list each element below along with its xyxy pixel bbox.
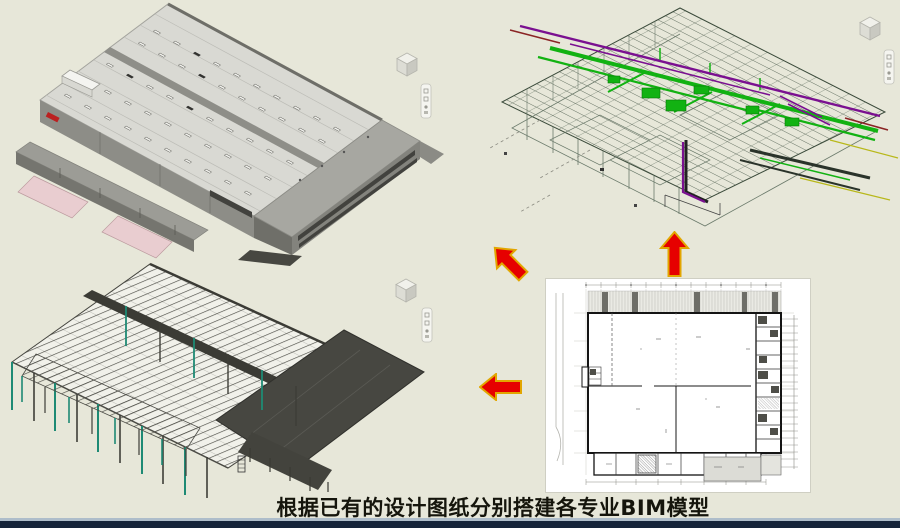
- struct-top-fragment: [238, 250, 302, 266]
- arrow-up-icon: [659, 231, 690, 277]
- arrow-up-left-icon: [485, 239, 533, 285]
- navigation-toolbar-icon[interactable]: [884, 50, 894, 84]
- viewcube-icon[interactable]: [396, 279, 416, 302]
- navigation-toolbar-icon[interactable]: [422, 308, 432, 342]
- navigation-toolbar-icon[interactable]: [421, 84, 431, 118]
- mep-model-view: [450, 0, 900, 250]
- slide: 根据已有的设计图纸分别搭建各专业BIM模型: [0, 0, 900, 528]
- arrow-left-icon: [479, 373, 522, 401]
- mep-dark-equipment: [504, 140, 870, 215]
- floor-plan-card: [545, 278, 811, 493]
- viewcube-icon[interactable]: [397, 53, 417, 76]
- caption: 根据已有的设计图纸分别搭建各专业BIM模型: [86, 492, 900, 518]
- architecture-model-view: [0, 0, 450, 260]
- plan-building-outline: [582, 313, 781, 453]
- viewcube-icon[interactable]: [860, 17, 880, 40]
- footer-bar: [0, 521, 900, 528]
- floor-plan-drawing: [546, 279, 810, 492]
- plan-top-dock-strip: [588, 291, 781, 313]
- structure-model-view: [0, 250, 450, 500]
